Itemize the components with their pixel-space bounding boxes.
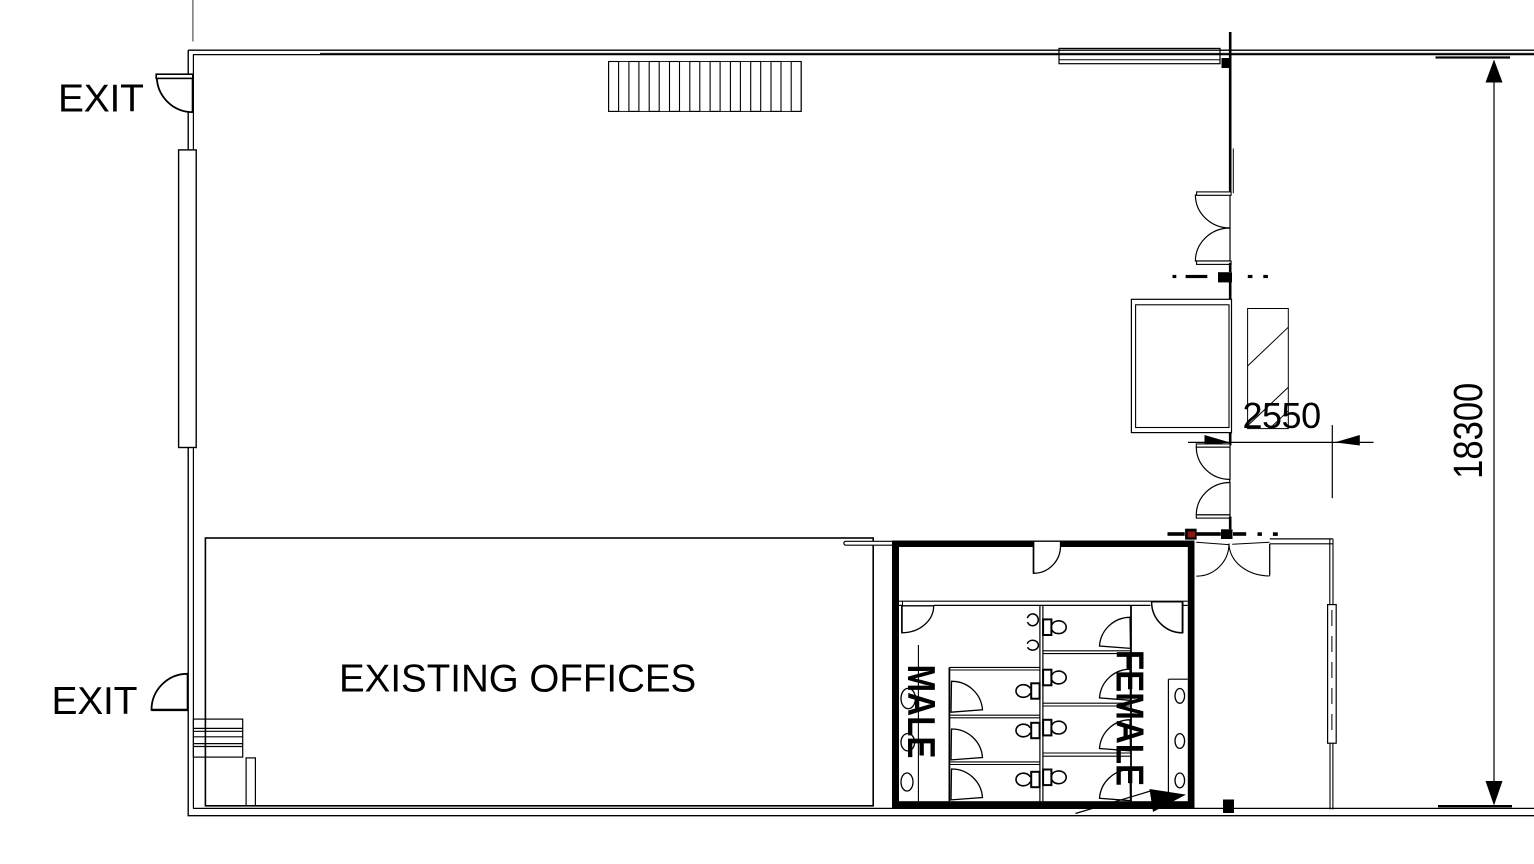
svg-text:MALE: MALE xyxy=(899,665,943,759)
svg-text:EXIT: EXIT xyxy=(58,77,144,120)
svg-text:FEMALE: FEMALE xyxy=(1108,650,1152,786)
svg-text:2550: 2550 xyxy=(1243,395,1321,436)
svg-text:EXIT: EXIT xyxy=(52,680,138,723)
svg-text:18300: 18300 xyxy=(1446,383,1491,479)
svg-text:EXISTING OFFICES: EXISTING OFFICES xyxy=(339,658,696,701)
